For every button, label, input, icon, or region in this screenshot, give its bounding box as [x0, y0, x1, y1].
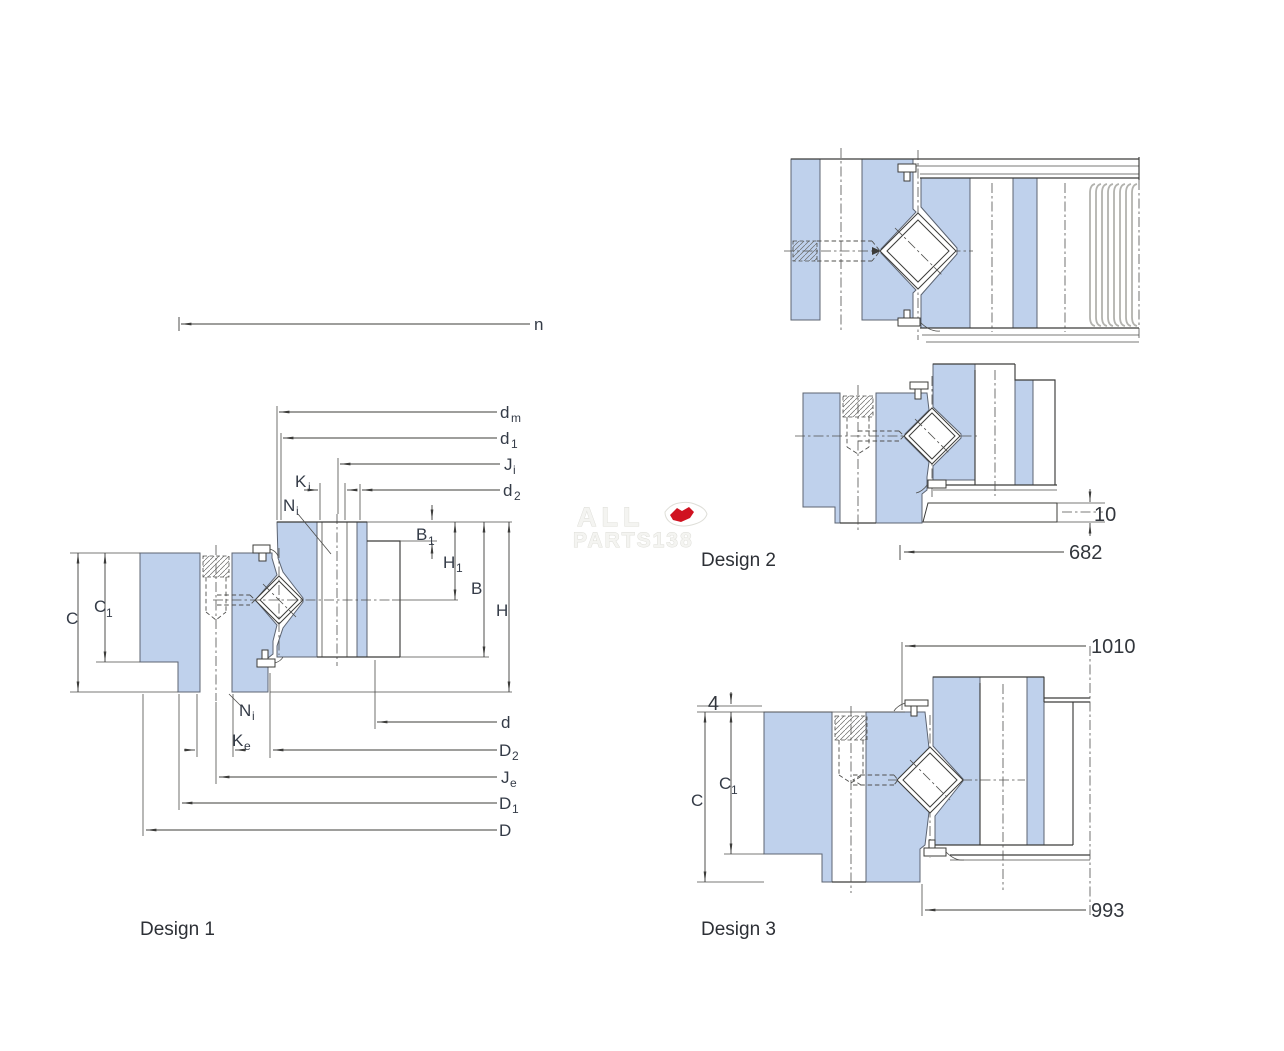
- dim-label-C1: C: [94, 597, 106, 616]
- dim-value-682: 682: [1069, 542, 1102, 564]
- dim-label-B1-sub: 1: [428, 534, 435, 548]
- dim-label-Je: J: [501, 768, 510, 787]
- dim-label-Ke-sub: e: [244, 739, 251, 753]
- design1-drawing: n d m d 1 J i d 2 K i N i B 1 H 1 B H C …: [66, 315, 543, 940]
- dim-label-C1: C: [719, 774, 731, 793]
- dim-label-C: C: [691, 791, 703, 810]
- dim-label-B1: B: [416, 525, 427, 544]
- dim-value-1010: 1010: [1091, 636, 1136, 658]
- dim-label-Ni-top-sub: i: [296, 504, 299, 518]
- dim-value-10: 10: [1094, 504, 1116, 526]
- dim-label-d1-sub: 1: [511, 437, 518, 451]
- technical-drawing-svg: n d m d 1 J i d 2 K i N i B 1 H 1 B H C …: [0, 0, 1284, 1051]
- dim-label-Ji-sub: i: [513, 463, 516, 477]
- dim-label-H1: H: [443, 553, 455, 572]
- dim-label-Ni-bottom-sub: i: [252, 709, 255, 723]
- design3-caption: Design 3: [701, 919, 776, 940]
- design2-drawing: 10 682 Design 2: [701, 364, 1116, 571]
- dim-value-993: 993: [1091, 900, 1124, 922]
- dim-label-d: d: [501, 713, 510, 732]
- seal-bottom: [928, 480, 946, 488]
- dim-label-C1-sub: 1: [106, 606, 113, 620]
- dim-label-dm: d: [500, 403, 509, 422]
- dim-label-C1-sub: 1: [731, 783, 738, 797]
- design3-drawing: 1010 4 C C 1 993 Design 3: [691, 636, 1136, 940]
- seal-bottom: [898, 318, 920, 326]
- dim-label-H1-sub: 1: [456, 561, 463, 575]
- seal-bottom: [924, 848, 946, 856]
- dim-label-D1: D: [499, 794, 511, 813]
- dim-label-Ki: K: [295, 472, 307, 491]
- dim-label-dm-sub: m: [511, 411, 521, 425]
- dim-label-n: n: [534, 315, 543, 334]
- dim-label-d1: d: [500, 429, 509, 448]
- seal-bottom: [257, 659, 275, 667]
- dim-label-C: C: [66, 609, 78, 628]
- watermark-logo: [670, 507, 694, 522]
- design2-caption: Design 2: [701, 550, 776, 571]
- dim-label-Ki-sub: i: [308, 480, 311, 494]
- seal-top: [910, 382, 928, 389]
- watermark-line1: ALL: [577, 502, 644, 532]
- dim-value-4: 4: [708, 693, 719, 715]
- design2-top-drawing: [784, 148, 1139, 342]
- dim-label-Ji: J: [504, 455, 513, 474]
- dim-label-d2-sub: 2: [514, 489, 521, 503]
- seal-top: [905, 700, 928, 706]
- dim-label-D2: D: [499, 741, 511, 760]
- dim-label-D: D: [499, 821, 511, 840]
- dim-label-Je-sub: e: [510, 776, 517, 790]
- bearing-designs-figure: n d m d 1 J i d 2 K i N i B 1 H 1 B H C …: [0, 0, 1284, 1051]
- design1-caption: Design 1: [140, 919, 215, 940]
- dim-label-D1-sub: 1: [512, 802, 519, 816]
- seal-top: [253, 545, 270, 553]
- dim-label-H: H: [496, 601, 508, 620]
- dim-label-d2: d: [503, 481, 512, 500]
- dim-label-B: B: [471, 579, 482, 598]
- dim-label-Ni-top: N: [283, 496, 295, 515]
- seal-top: [898, 164, 916, 172]
- watermark: ALL PARTS138: [573, 502, 707, 552]
- dim-label-Ni-bottom: N: [239, 701, 251, 720]
- watermark-line2: PARTS138: [573, 529, 694, 552]
- dim-label-Ke: K: [232, 731, 244, 750]
- dim-label-D2-sub: 2: [512, 749, 519, 763]
